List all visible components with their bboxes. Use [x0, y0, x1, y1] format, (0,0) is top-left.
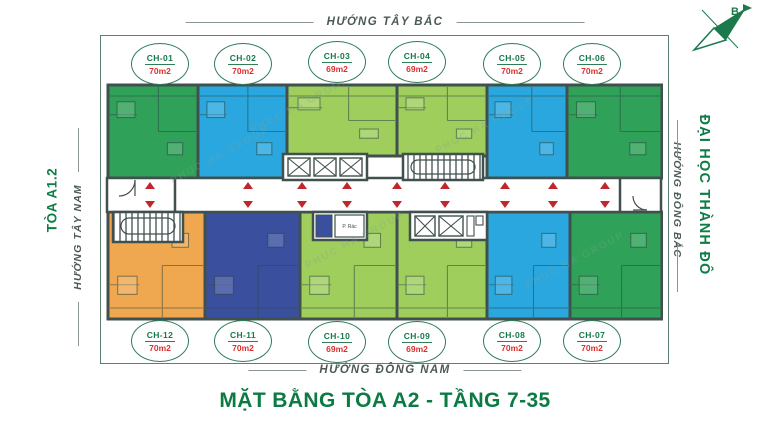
adjacent-building-label: TÒA A1.2 [45, 168, 60, 233]
unit-area-label: 70m2 [149, 66, 171, 76]
unit-id: CH-03 [324, 51, 351, 61]
divider-line [497, 341, 527, 342]
divider-line [677, 244, 678, 292]
unit-area-label: 70m2 [501, 343, 523, 353]
technical-rooms: P. Rác [313, 212, 367, 240]
unit-area-label: 70m2 [149, 343, 171, 353]
landmark-label: ĐẠI HỌC THÀNH ĐÔ [696, 115, 712, 276]
top-units [108, 85, 662, 178]
unit-badge-ch-02: CH-02 70m2 [214, 43, 272, 85]
left-exit-vestibule [107, 178, 175, 212]
divider-line [78, 128, 79, 172]
divider-line [145, 341, 175, 342]
unit-id: CH-06 [579, 53, 606, 63]
unit-id: CH-11 [230, 330, 256, 340]
unit-badge-ch-09: CH-09 69m2 [388, 321, 446, 363]
unit-area-label: 70m2 [501, 66, 523, 76]
unit-area-label: 70m2 [581, 66, 603, 76]
divider-line [577, 341, 607, 342]
unit-badge-ch-05: CH-05 70m2 [483, 43, 541, 85]
compass-icon: B [686, 2, 754, 58]
compass-north-label: B [731, 6, 739, 18]
bottom-units [108, 212, 662, 319]
unit-id: CH-07 [579, 330, 606, 340]
unit-area-label: 70m2 [232, 343, 254, 353]
unit-badge-ch-04: CH-04 69m2 [388, 41, 446, 83]
divider-line [464, 370, 522, 371]
direction-label-bottom: HƯỚNG ĐÔNG NAM [248, 364, 521, 376]
unit-badge-ch-12: CH-12 70m2 [131, 320, 189, 362]
divider-line [186, 22, 314, 23]
divider-line [78, 302, 79, 346]
unit-id: CH-05 [499, 53, 526, 63]
floor-plan: P. Rác [105, 82, 663, 322]
direction-bottom-text: HƯỚNG ĐÔNG NAM [319, 364, 450, 376]
unit-badge-ch-08: CH-08 70m2 [483, 320, 541, 362]
unit-badge-ch-01: CH-01 70m2 [131, 43, 189, 85]
unit-badge-ch-10: CH-10 69m2 [308, 321, 366, 363]
elevator-core-top [283, 154, 367, 180]
unit-badge-ch-11: CH-11 70m2 [214, 320, 272, 362]
divider-line [402, 62, 432, 63]
unit-id: CH-09 [404, 331, 431, 341]
direction-top-text: HƯỚNG TÂY BẮC [327, 16, 444, 28]
unit-badge-ch-07: CH-07 70m2 [563, 320, 621, 362]
divider-line [677, 120, 678, 158]
divider-line [322, 342, 352, 343]
unit-badge-ch-03: CH-03 69m2 [308, 41, 366, 83]
divider-line [228, 64, 258, 65]
divider-line [402, 342, 432, 343]
unit-area-label: 70m2 [232, 66, 254, 76]
divider-line [497, 64, 527, 65]
stair-core-top [403, 154, 483, 180]
unit-id: CH-08 [499, 330, 526, 340]
unit-id: CH-10 [324, 331, 351, 341]
unit-id: CH-12 [147, 330, 174, 340]
page-title: MẶT BẰNG TÒA A2 - TẦNG 7-35 [219, 389, 550, 413]
floor-plan-poster: B HƯỚNG TÂY BẮC [0, 0, 768, 431]
divider-line [145, 64, 175, 65]
unit-id: CH-01 [147, 53, 174, 63]
unit-area-label: 69m2 [326, 344, 348, 354]
corridor-floor [107, 178, 661, 212]
divider-line [228, 341, 258, 342]
unit-area-label: 69m2 [406, 344, 428, 354]
direction-label-right: HƯỚNG ĐÔNG BẮC [671, 142, 683, 258]
right-exit-vestibule [620, 178, 661, 212]
direction-label-top: HƯỚNG TÂY BẮC [186, 16, 585, 28]
divider-line [577, 64, 607, 65]
divider-line [248, 370, 306, 371]
unit-id: CH-02 [230, 53, 257, 63]
divider-line [456, 22, 584, 23]
unit-badge-ch-06: CH-06 70m2 [563, 43, 621, 85]
unit-area-label: 70m2 [581, 343, 603, 353]
unit-area-label: 69m2 [406, 64, 428, 74]
technical-box [316, 215, 332, 237]
stair-core-bottom-left [113, 212, 183, 242]
unit-id: CH-04 [404, 51, 431, 61]
trash-room-label: P. Rác [342, 224, 357, 230]
elevator-core-bottom [410, 212, 487, 240]
direction-label-left: HƯỚNG TÂY NAM [72, 184, 84, 289]
divider-line [322, 62, 352, 63]
corridor [107, 178, 661, 212]
unit-area-label: 69m2 [326, 64, 348, 74]
